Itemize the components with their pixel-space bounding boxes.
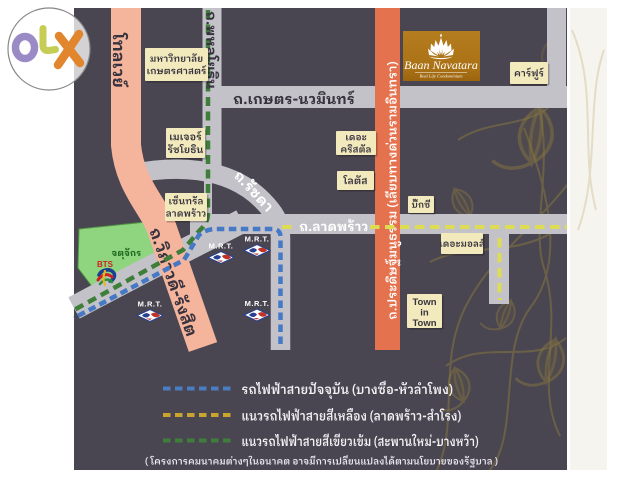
svg-text:M.R.T.: M.R.T.	[245, 235, 270, 244]
svg-text:Town: Town	[412, 297, 436, 308]
svg-text:M.R.T.: M.R.T.	[245, 299, 270, 308]
svg-text:M.R.T.: M.R.T.	[209, 242, 234, 251]
svg-text:Real Life Condominium: Real Life Condominium	[419, 74, 464, 79]
svg-text:M.R.T.: M.R.T.	[138, 300, 163, 309]
svg-text:Baan Navatara: Baan Navatara	[404, 58, 478, 72]
svg-text:BTS: BTS	[97, 260, 114, 269]
svg-text:Town: Town	[412, 318, 436, 329]
svg-text:in: in	[420, 308, 429, 319]
